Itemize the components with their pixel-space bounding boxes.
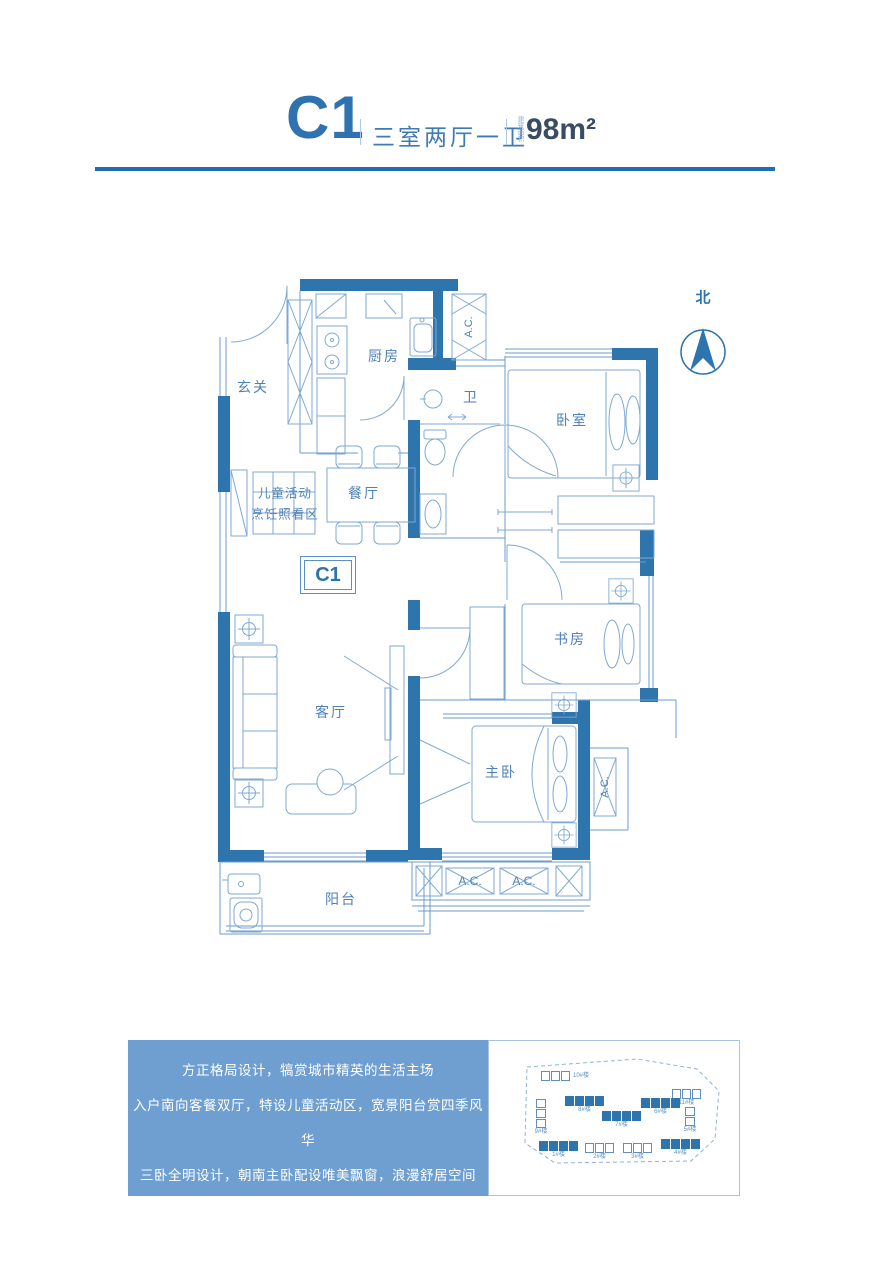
site-building-unit [632,1111,641,1121]
site-building: 4#楼 [661,1139,700,1149]
ac-label-right: A.C. [599,776,611,797]
room-label-dining: 餐厅 [348,483,380,503]
site-building-label: 6#楼 [654,1109,667,1115]
description-panel: 方正格局设计，犒赏城市精英的生活主场 入户南向客餐双厅，特设儿童活动区，宽景阳台… [128,1040,488,1196]
site-building-unit [641,1098,650,1108]
site-building-unit [691,1139,700,1149]
room-label-study: 书房 [554,629,586,649]
site-building-unit [605,1143,614,1153]
site-building-unit [536,1119,546,1128]
room-label-bedroom: 卧室 [556,410,588,430]
description-line: 入户南向客餐双厅，特设儿童活动区，宽景阳台赏四季风华 [128,1088,488,1158]
site-building-unit [633,1143,642,1153]
bathroom-fixtures [420,390,500,534]
room-label-master: 主卧 [485,762,517,782]
site-building-unit [602,1111,611,1121]
site-building-unit [612,1111,621,1121]
site-building: 6#楼 [641,1098,680,1108]
site-building-label: 1#楼 [552,1152,565,1158]
site-building: 5#楼 [685,1107,695,1126]
unit-box: C1 [300,556,356,594]
north-label: 北 [695,287,710,308]
room-label-kitchen: 厨房 [368,346,400,366]
site-building-unit [681,1139,690,1149]
site-building-unit [536,1109,546,1118]
site-building: 3#楼 [623,1143,652,1153]
site-building-unit [682,1089,691,1099]
site-building-unit [539,1141,548,1151]
site-building-unit [595,1143,604,1153]
room-label-bath: 卫 [463,387,477,407]
site-building-unit [685,1117,695,1126]
site-plan: 10#楼11#楼9#楼8#楼7#楼6#楼5#楼1#楼2#楼3#楼4#楼 [488,1040,740,1196]
site-building-unit [685,1107,695,1116]
site-building-unit [661,1139,670,1149]
site-building: 10#楼 [541,1071,570,1081]
site-building-unit [536,1099,546,1108]
walls-layer [218,279,658,862]
site-building: 8#楼 [565,1096,604,1106]
bedroom-furniture [498,370,654,558]
site-building: 7#楼 [602,1111,641,1121]
site-building-unit [671,1098,680,1108]
site-building-label: 9#楼 [535,1129,548,1135]
site-building-label: 11#楼 [679,1100,695,1106]
unit-box-label: C1 [301,557,355,593]
site-building-unit [643,1143,652,1153]
site-building-unit [561,1071,570,1081]
description-line: 方正格局设计，犒赏城市精英的生活主场 [128,1053,488,1088]
site-building-unit [661,1098,670,1108]
site-building-unit [622,1111,631,1121]
bottom-section: 方正格局设计，犒赏城市精英的生活主场 入户南向客餐双厅，特设儿童活动区，宽景阳台… [128,1040,740,1196]
site-building-unit [595,1096,604,1106]
room-label-kids-line1: 儿童活动 [258,483,312,502]
site-building-label: 10#楼 [573,1073,589,1079]
site-building-unit [559,1141,568,1151]
ac-label-top: A.C. [463,316,475,337]
site-building-label: 5#楼 [684,1127,697,1133]
description-line: 三卧全明设计，朝南主卧配设唯美飘窗，浪漫舒居空间 [128,1158,488,1193]
site-building-label: 8#楼 [578,1107,591,1113]
site-building-label: 2#楼 [593,1154,606,1160]
site-building-label: 4#楼 [674,1150,687,1156]
site-building-unit [671,1139,680,1149]
site-building-label: 7#楼 [615,1122,628,1128]
site-building-unit [551,1071,560,1081]
room-label-balcony: 阳台 [325,889,357,909]
site-building-unit [692,1089,701,1099]
room-label-living: 客厅 [315,702,347,722]
site-building-unit [585,1143,594,1153]
room-label-entry: 玄关 [237,377,269,397]
site-building-unit [549,1141,558,1151]
site-building-unit [541,1071,550,1081]
ac-label-bottom1: A.C. [458,874,481,888]
site-building: 1#楼 [539,1141,578,1151]
site-plan-buildings: 10#楼11#楼9#楼8#楼7#楼6#楼5#楼1#楼2#楼3#楼4#楼 [489,1041,739,1195]
site-building-unit [623,1143,632,1153]
site-building-unit [565,1096,574,1106]
site-building-unit [585,1096,594,1106]
site-building-label: 3#楼 [631,1154,644,1160]
compass-icon [681,328,725,374]
floorplan-page: C1 三室两厅一卫 建筑面积 98m² [0,0,869,1280]
site-building-unit [575,1096,584,1106]
balcony-fixtures [222,874,262,932]
ac-label-bottom2: A.C. [512,874,535,888]
description-line: 厨卫合理搭配，干湿分离卫浴室，动静相宜格局设计 [128,1193,488,1228]
room-label-kids-line2: 烹饪照看区 [251,504,319,523]
site-building-unit [569,1141,578,1151]
site-building: 2#楼 [585,1143,614,1153]
site-building: 9#楼 [536,1099,546,1128]
site-building-unit [651,1098,660,1108]
